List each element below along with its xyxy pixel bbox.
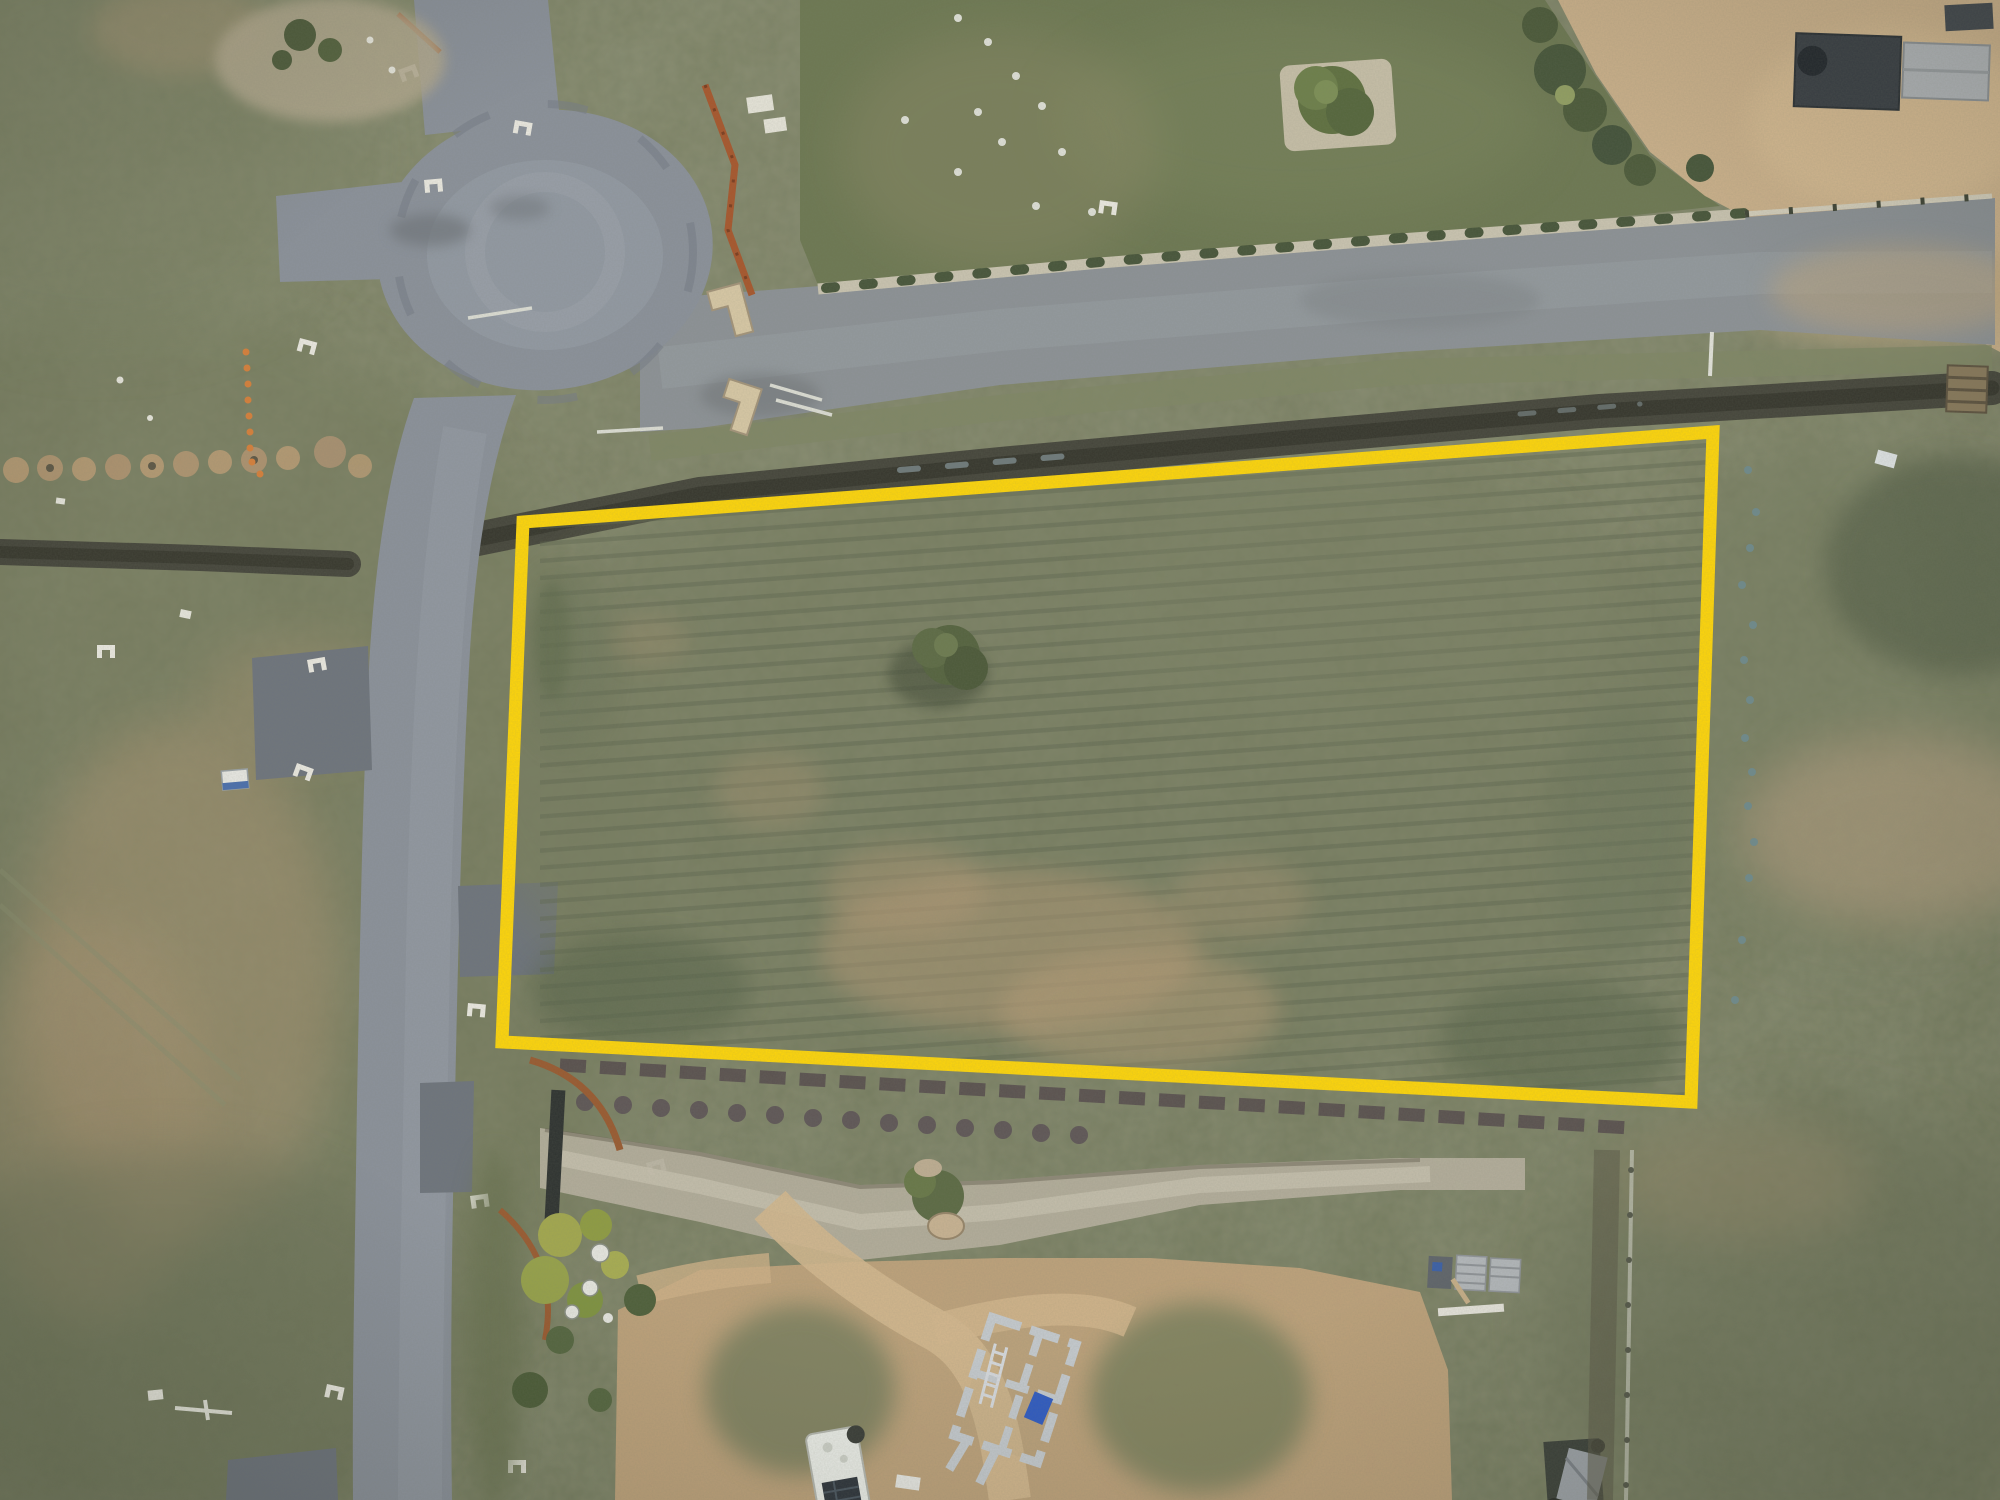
vignette <box>0 0 2000 1500</box>
aerial-photo-canvas <box>0 0 2000 1500</box>
aerial-photo <box>0 0 2000 1500</box>
